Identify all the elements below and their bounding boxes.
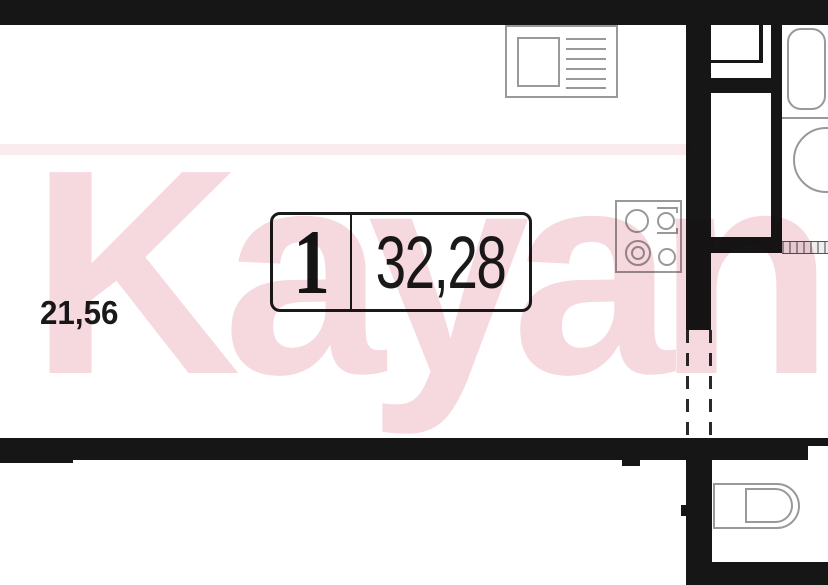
- dashed-opening-right: [709, 330, 712, 438]
- wall-right-lower: [686, 438, 712, 585]
- sink-drainer-line: [566, 68, 606, 70]
- niche-border-bottom: [711, 60, 763, 63]
- washbasin-icon: [793, 127, 828, 193]
- shaft-top-bar: [711, 78, 771, 93]
- stove-bracket-bottom: [657, 232, 678, 234]
- dashed-opening-left: [686, 330, 689, 438]
- wall-bathroom-left: [771, 25, 782, 253]
- wall-left-step: [0, 460, 73, 463]
- room-area-label: 21,56: [40, 294, 118, 332]
- stove-burner-icon: [658, 248, 676, 266]
- niche-border-right: [759, 25, 763, 63]
- unit-label-box: 1 32,28: [270, 212, 532, 312]
- watermark-stripe: [0, 144, 690, 155]
- sink-drainer-line: [566, 78, 606, 80]
- door-frame-tick-2: [681, 505, 688, 516]
- wall-top: [0, 0, 828, 25]
- hatched-threshold: [782, 241, 828, 254]
- wall-wc-bottom: [712, 562, 828, 585]
- stove-burner-inner-icon: [631, 246, 645, 260]
- sink-drainer-line: [566, 38, 606, 40]
- bathroom-divider-line: [782, 117, 828, 119]
- unit-box-divider: [350, 215, 352, 309]
- stove-bracket-tick: [676, 228, 678, 232]
- bathtub-icon: [787, 28, 826, 110]
- wall-main-horizontal-thin-end: [808, 438, 828, 446]
- unit-total-area: 32,28: [375, 215, 506, 309]
- door-frame-tick-1: [622, 458, 640, 466]
- floor-plan: 21,56 1 32,28 Kayan: [0, 0, 828, 585]
- toilet-bowl-icon: [745, 488, 793, 523]
- stove-bracket-tick: [676, 209, 678, 213]
- kitchen-sink-basin-icon: [517, 37, 560, 87]
- stove-bracket-top: [657, 207, 678, 209]
- unit-number: 1: [281, 215, 343, 309]
- wall-right-upper: [686, 25, 711, 330]
- stove-burner-icon: [657, 212, 675, 230]
- stove-burner-icon: [625, 209, 649, 233]
- sink-drainer-line: [566, 48, 606, 50]
- sink-drainer-line: [566, 58, 606, 60]
- sink-drainer-line: [566, 87, 606, 89]
